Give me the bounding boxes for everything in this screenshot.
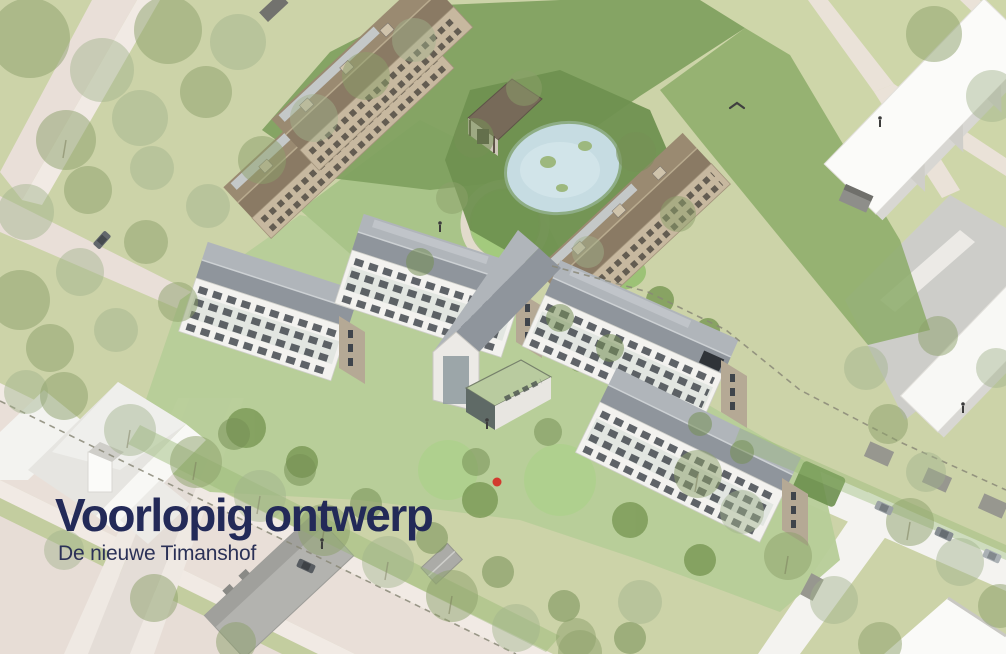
tree-canopy [180,66,232,118]
tree-canopy [906,6,962,62]
tree-canopy [342,52,390,100]
tree-canopy [64,166,112,214]
tree-canopy [546,304,574,332]
tree-canopy [94,308,138,352]
lily-pad [578,141,592,151]
gable-glazing [443,356,469,404]
tree-canopy [618,580,662,624]
tree-canopy [218,418,250,450]
tree-canopy [238,136,286,184]
tree-canopy [906,452,946,492]
tree-canopy [454,118,494,158]
lily-pad [540,156,556,168]
tree-canopy [158,282,198,322]
rendering-page: Voorlopig ontwerp De nieuwe Timanshof [0,0,1006,654]
tree-canopy [720,490,764,534]
tree-canopy [392,18,436,62]
tree-canopy [492,604,540,652]
tree-canopy [660,196,696,232]
tree-canopy [462,448,490,476]
tree-canopy [70,38,134,102]
tree-canopy [406,248,434,276]
tree-canopy [130,574,178,622]
tree-canopy [674,450,722,498]
page-title: Voorlopig ontwerp [55,489,433,541]
tree-canopy [436,182,468,214]
tree-canopy [868,404,908,444]
tree-canopy [534,418,562,446]
tree-canopy [688,412,712,436]
tree-canopy [284,454,316,486]
tree-canopy [26,324,74,372]
gable-windows-1 [348,330,353,366]
tree-canopy [616,132,656,172]
tree-canopy [112,90,168,146]
tree-canopy [124,220,168,264]
tree-canopy [844,346,888,390]
tree-canopy [548,590,580,622]
tree-canopy [482,556,514,588]
tree-canopy [0,184,54,240]
tree-canopy [40,372,88,420]
tree-canopy [764,532,812,580]
tree-canopy [886,498,934,546]
tree-canopy [936,538,984,586]
gable-windows-4 [791,492,796,528]
tree-canopy [730,440,754,464]
page-subtitle: De nieuwe Timanshof [58,542,257,565]
tree-canopy [918,316,958,356]
tree-canopy [290,94,338,142]
tree-canopy [810,576,858,624]
tree-canopy [36,110,96,170]
red-marker-dot [493,478,502,487]
tree-canopy [362,536,414,588]
site-plan-rendering: Voorlopig ontwerp De nieuwe Timanshof [0,0,1006,654]
tree-canopy [506,70,542,106]
lily-pad [556,184,568,192]
tree-canopy [596,334,624,362]
tree-canopy [426,570,478,622]
tree-canopy [210,14,266,70]
tree-canopy [104,404,156,456]
tree-canopy [572,236,604,268]
tree-canopy [186,184,230,228]
tree-canopy [130,146,174,190]
tree-canopy [56,248,104,296]
gable-windows-3 [730,374,735,410]
tree-canopy [170,436,222,488]
tree-canopy [614,622,646,654]
